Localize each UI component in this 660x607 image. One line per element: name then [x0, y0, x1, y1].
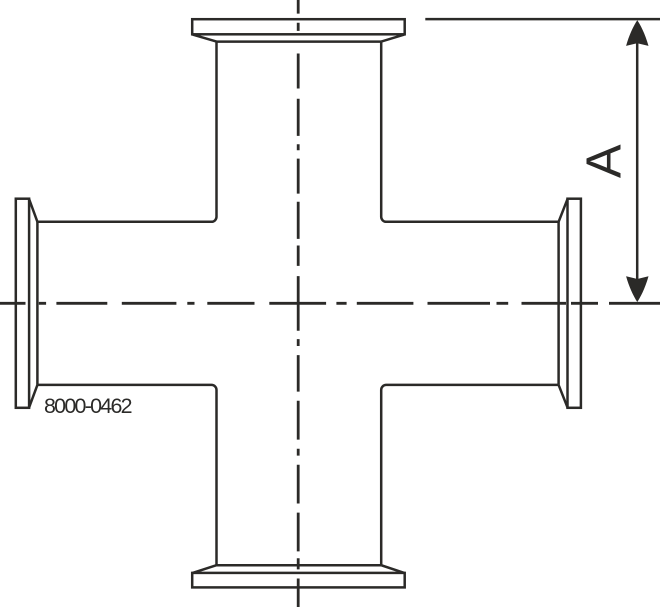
- svg-text:8000-0462: 8000-0462: [44, 394, 132, 418]
- svg-text:A: A: [576, 144, 631, 178]
